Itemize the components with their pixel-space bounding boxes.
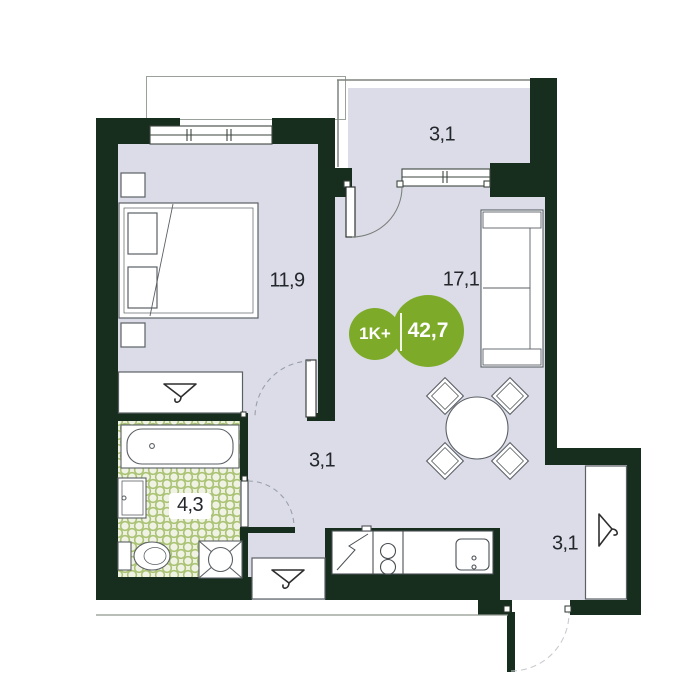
entry-area-label: 3,1 (552, 533, 578, 556)
wall-segment (478, 600, 512, 615)
badge-type-label: 1K+ (353, 324, 397, 344)
wall-segment (325, 528, 500, 600)
wall-segment (335, 168, 352, 197)
bathroom-area-label: 4,3 (169, 493, 211, 519)
wall-segment (240, 527, 248, 577)
wall-segment (545, 197, 557, 448)
wall-segment (247, 527, 295, 533)
wall-segment (318, 144, 335, 197)
upper-ledge-outline (146, 76, 346, 120)
wall-segment (96, 118, 118, 600)
kitchen-living-area-label: 17,1 (443, 269, 480, 292)
wall-segment (96, 577, 252, 600)
wall-segment (96, 118, 180, 144)
bedroom-area-label: 11,9 (269, 270, 304, 293)
loggia-area-label: 3,1 (429, 124, 455, 147)
badge-area-label: 42,7 (402, 319, 454, 343)
floor-plan: 11,9 3,1 17,1 3,1 4,3 3,1 1K+ 42,7 (0, 0, 700, 700)
wall-segment (118, 413, 248, 421)
wall-segment (272, 118, 335, 144)
wall-segment (490, 163, 557, 197)
wall-segment (240, 421, 248, 480)
wall-segment (307, 413, 335, 421)
wall-segment (545, 448, 641, 465)
room-hallway-floor (240, 415, 335, 600)
wall-segment (627, 465, 641, 615)
wall-segment (530, 78, 557, 163)
wall-segment (318, 197, 335, 420)
hallway-area-label: 3,1 (309, 450, 335, 473)
entrance-door-icon (504, 606, 571, 672)
